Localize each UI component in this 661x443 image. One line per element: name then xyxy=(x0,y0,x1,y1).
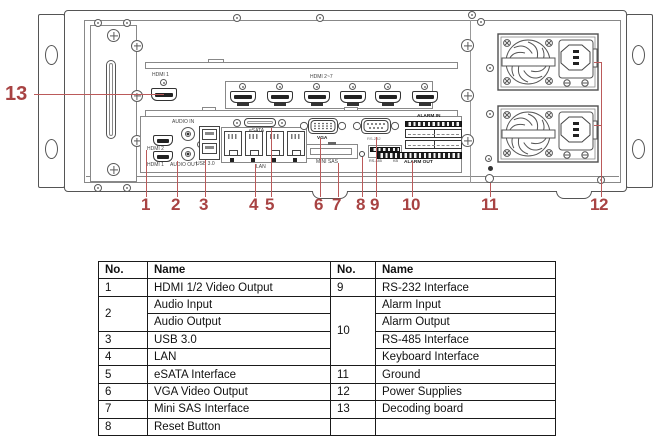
cell-name: Mini SAS Interface xyxy=(148,401,331,418)
hdmi-port xyxy=(153,135,173,146)
screw-icon xyxy=(123,184,131,192)
cell-name: Power Supplies xyxy=(376,383,556,400)
cell-no: 3 xyxy=(99,331,148,348)
table-row: 8 Reset Button xyxy=(99,418,556,435)
col-header-name-left: Name xyxy=(148,262,331,279)
callout-line-12-stub xyxy=(594,62,602,63)
usb-port xyxy=(202,129,217,140)
kb-label: KB xyxy=(393,160,398,164)
screw-icon xyxy=(233,14,241,22)
rack-ear-hole xyxy=(45,45,58,65)
hdmi1-label: HDMI 1 xyxy=(147,163,164,168)
hdmi-tab xyxy=(311,103,323,106)
hdmi-tab xyxy=(419,103,431,106)
cell-name: USB 3.0 xyxy=(148,331,331,348)
callout-number-7: 7 xyxy=(332,196,341,213)
screw-icon xyxy=(486,64,494,72)
power-supply-unit xyxy=(497,33,599,91)
screw-icon xyxy=(316,14,324,22)
callout-line-1 xyxy=(146,150,147,197)
alarm-out-pins xyxy=(377,152,462,159)
callout-number-6: 6 xyxy=(314,196,323,213)
screw-icon xyxy=(233,119,241,127)
screw-icon xyxy=(468,11,476,19)
cell-no xyxy=(331,418,376,435)
table-row: Audio Output Alarm Output xyxy=(99,314,556,331)
interface-description-table: No. Name No. Name 1 HDMI 1/2 Video Outpu… xyxy=(98,261,556,436)
cell-no: 11 xyxy=(331,366,376,383)
cell-no: 6 xyxy=(99,383,148,400)
cell-name: Reset Button xyxy=(148,418,331,435)
rack-ear-hole xyxy=(632,139,645,159)
esata-label: eSATA xyxy=(249,129,264,134)
ground-screw xyxy=(485,155,492,162)
lan-led xyxy=(251,158,255,162)
hdmi-port xyxy=(304,91,330,103)
cell-no: 2 xyxy=(99,296,148,331)
callout-number-13: 13 xyxy=(5,84,27,104)
table-row: 4 LAN Keyboard Interface xyxy=(99,348,556,365)
cell-no: 8 xyxy=(99,418,148,435)
screw-icon xyxy=(313,83,320,90)
callout-line-12 xyxy=(601,62,602,197)
mini-sas-slot xyxy=(310,148,352,155)
rack-ear-left xyxy=(38,14,65,188)
screw-icon xyxy=(384,83,391,90)
cell-no: 12 xyxy=(331,383,376,400)
hdmi-port xyxy=(267,91,293,103)
callout-line-10 xyxy=(412,161,413,197)
callout-line-3 xyxy=(205,160,206,197)
lan-led xyxy=(293,158,297,162)
callout-line-4 xyxy=(255,164,256,197)
table-row: 7 Mini SAS Interface 13 Decoding board xyxy=(99,401,556,418)
cell-name: Audio Output xyxy=(148,314,331,331)
callout-number-3: 3 xyxy=(199,196,208,213)
callout-line-9 xyxy=(376,137,377,197)
cell-name: RS-485 Interface xyxy=(376,331,556,348)
callout-number-12: 12 xyxy=(590,196,608,213)
alarm-in-label: ALARM IN xyxy=(417,115,440,120)
rack-ear-right xyxy=(626,14,653,188)
cell-name: Ground xyxy=(376,366,556,383)
hdmi-port xyxy=(412,91,438,103)
mini-sas-latch xyxy=(328,142,336,145)
callout-line-7 xyxy=(338,163,339,197)
alarm-out-label: ALARM OUT xyxy=(404,161,433,166)
callout-number-11: 11 xyxy=(481,196,498,213)
lan-port xyxy=(266,131,284,156)
cell-name: eSATA Interface xyxy=(148,366,331,383)
screw-icon xyxy=(486,110,494,118)
callout-line-13 xyxy=(34,94,164,95)
screw-icon xyxy=(421,83,428,90)
lan-port xyxy=(224,131,242,156)
audio-out-jack xyxy=(181,147,195,161)
table-row: 1 HDMI 1/2 Video Output 9 RS-232 Interfa… xyxy=(99,279,556,296)
cell-name xyxy=(376,418,556,435)
screw-icon xyxy=(461,89,474,102)
hdmi-tab xyxy=(237,103,249,106)
cell-name: Alarm Output xyxy=(376,314,556,331)
audio-in-label: AUDIO IN xyxy=(172,120,194,125)
hdmi-group-label: HDMI 2~7 xyxy=(310,75,333,80)
screw-icon xyxy=(477,18,485,26)
alarm-terminal-row xyxy=(405,129,462,138)
ground-terminal xyxy=(488,166,493,171)
rs232-label: RS-232 xyxy=(367,137,381,141)
usb-port xyxy=(202,143,217,154)
cell-no: 5 xyxy=(99,366,148,383)
screw-icon xyxy=(131,90,143,102)
callout-number-5: 5 xyxy=(265,196,274,213)
slot-rail-tab xyxy=(202,107,216,111)
panel-bottom-line xyxy=(86,176,619,177)
cell-no: 7 xyxy=(99,401,148,418)
ground-ring xyxy=(485,174,494,183)
chassis-foot xyxy=(556,191,592,199)
screw-icon xyxy=(276,83,283,90)
lan-led xyxy=(230,158,234,162)
slot-cover-rail xyxy=(145,62,458,69)
screw-icon xyxy=(94,19,102,27)
table-row: 6 VGA Video Output 12 Power Supplies xyxy=(99,383,556,400)
cell-name: HDMI 1/2 Video Output xyxy=(148,279,331,296)
slot-rail-tab xyxy=(344,107,358,111)
esata-port xyxy=(244,118,276,127)
power-supply-unit xyxy=(497,105,599,163)
hdmi-single-label: HDMI 1 xyxy=(152,73,169,78)
cell-name: RS-232 Interface xyxy=(376,279,556,296)
hdmi-port xyxy=(375,91,401,103)
col-header-no-left: No. xyxy=(99,262,148,279)
audio-in-jack xyxy=(181,127,195,141)
table-row: 5 eSATA Interface 11 Ground xyxy=(99,366,556,383)
screw-icon xyxy=(461,39,474,52)
col-header-no-right: No. xyxy=(331,262,376,279)
screw-icon xyxy=(107,163,120,176)
rack-ear-hole xyxy=(45,139,58,159)
vga-label: VGA xyxy=(317,137,327,142)
hdmi-tab xyxy=(347,103,359,106)
hdmi-port xyxy=(340,91,366,103)
screw-icon xyxy=(278,119,286,127)
alarm-in-pins xyxy=(405,121,462,127)
callout-line-2 xyxy=(177,161,178,197)
panel-handle-slot xyxy=(106,60,116,139)
screw-icon xyxy=(123,19,131,27)
rack-ear-hole xyxy=(632,45,645,65)
cell-name: Keyboard Interface xyxy=(376,348,556,365)
audio-out-label: AUDIO OUT xyxy=(170,163,198,168)
cell-name: Audio Input xyxy=(148,296,331,313)
rs232-connector xyxy=(353,117,399,135)
callout-line-12-stub xyxy=(594,125,602,126)
cell-no: 9 xyxy=(331,279,376,296)
table-header-row: No. Name No. Name xyxy=(99,262,556,279)
callout-number-1: 1 xyxy=(141,196,150,213)
screw-icon xyxy=(160,79,167,86)
col-header-name-right: Name xyxy=(376,262,556,279)
usb-ports xyxy=(199,126,220,160)
cell-no: 13 xyxy=(331,401,376,418)
alarm-terminal-row xyxy=(405,140,462,149)
hdmi-tab xyxy=(382,103,394,106)
screw-icon xyxy=(349,83,356,90)
cell-no: 1 xyxy=(99,279,148,296)
vga-connector xyxy=(300,117,346,135)
callout-number-9: 9 xyxy=(370,196,379,213)
slot-cover-tab xyxy=(208,59,224,63)
hdmi-port xyxy=(230,91,256,103)
cell-name: Decoding board xyxy=(376,401,556,418)
lan-port xyxy=(245,131,263,156)
cell-name: LAN xyxy=(148,348,331,365)
hdmi-tab xyxy=(274,103,286,106)
manual-page: HDMI 1 HDMI 2~7 xyxy=(0,0,661,443)
cell-no: 10 xyxy=(331,296,376,366)
screw-icon xyxy=(107,29,120,42)
callout-number-10: 10 xyxy=(402,196,420,213)
callout-number-4: 4 xyxy=(249,196,258,213)
callout-line-6 xyxy=(320,138,321,197)
lan-led xyxy=(272,158,276,162)
screw-icon xyxy=(131,40,143,52)
hdmi-port xyxy=(153,151,173,162)
callout-line-8 xyxy=(362,157,363,197)
cell-name: VGA Video Output xyxy=(148,383,331,400)
callout-line-5 xyxy=(271,128,272,197)
lan-label: LAN xyxy=(256,165,266,170)
table-row: 3 USB 3.0 RS-485 Interface xyxy=(99,331,556,348)
screw-icon xyxy=(239,83,246,90)
table-row: 2 Audio Input 10 Alarm Input xyxy=(99,296,556,313)
screw-icon xyxy=(94,184,102,192)
cell-name: Alarm Input xyxy=(376,296,556,313)
callout-number-8: 8 xyxy=(356,196,365,213)
screw-icon xyxy=(461,134,474,147)
callout-number-2: 2 xyxy=(171,196,180,213)
cell-no: 4 xyxy=(99,348,148,365)
